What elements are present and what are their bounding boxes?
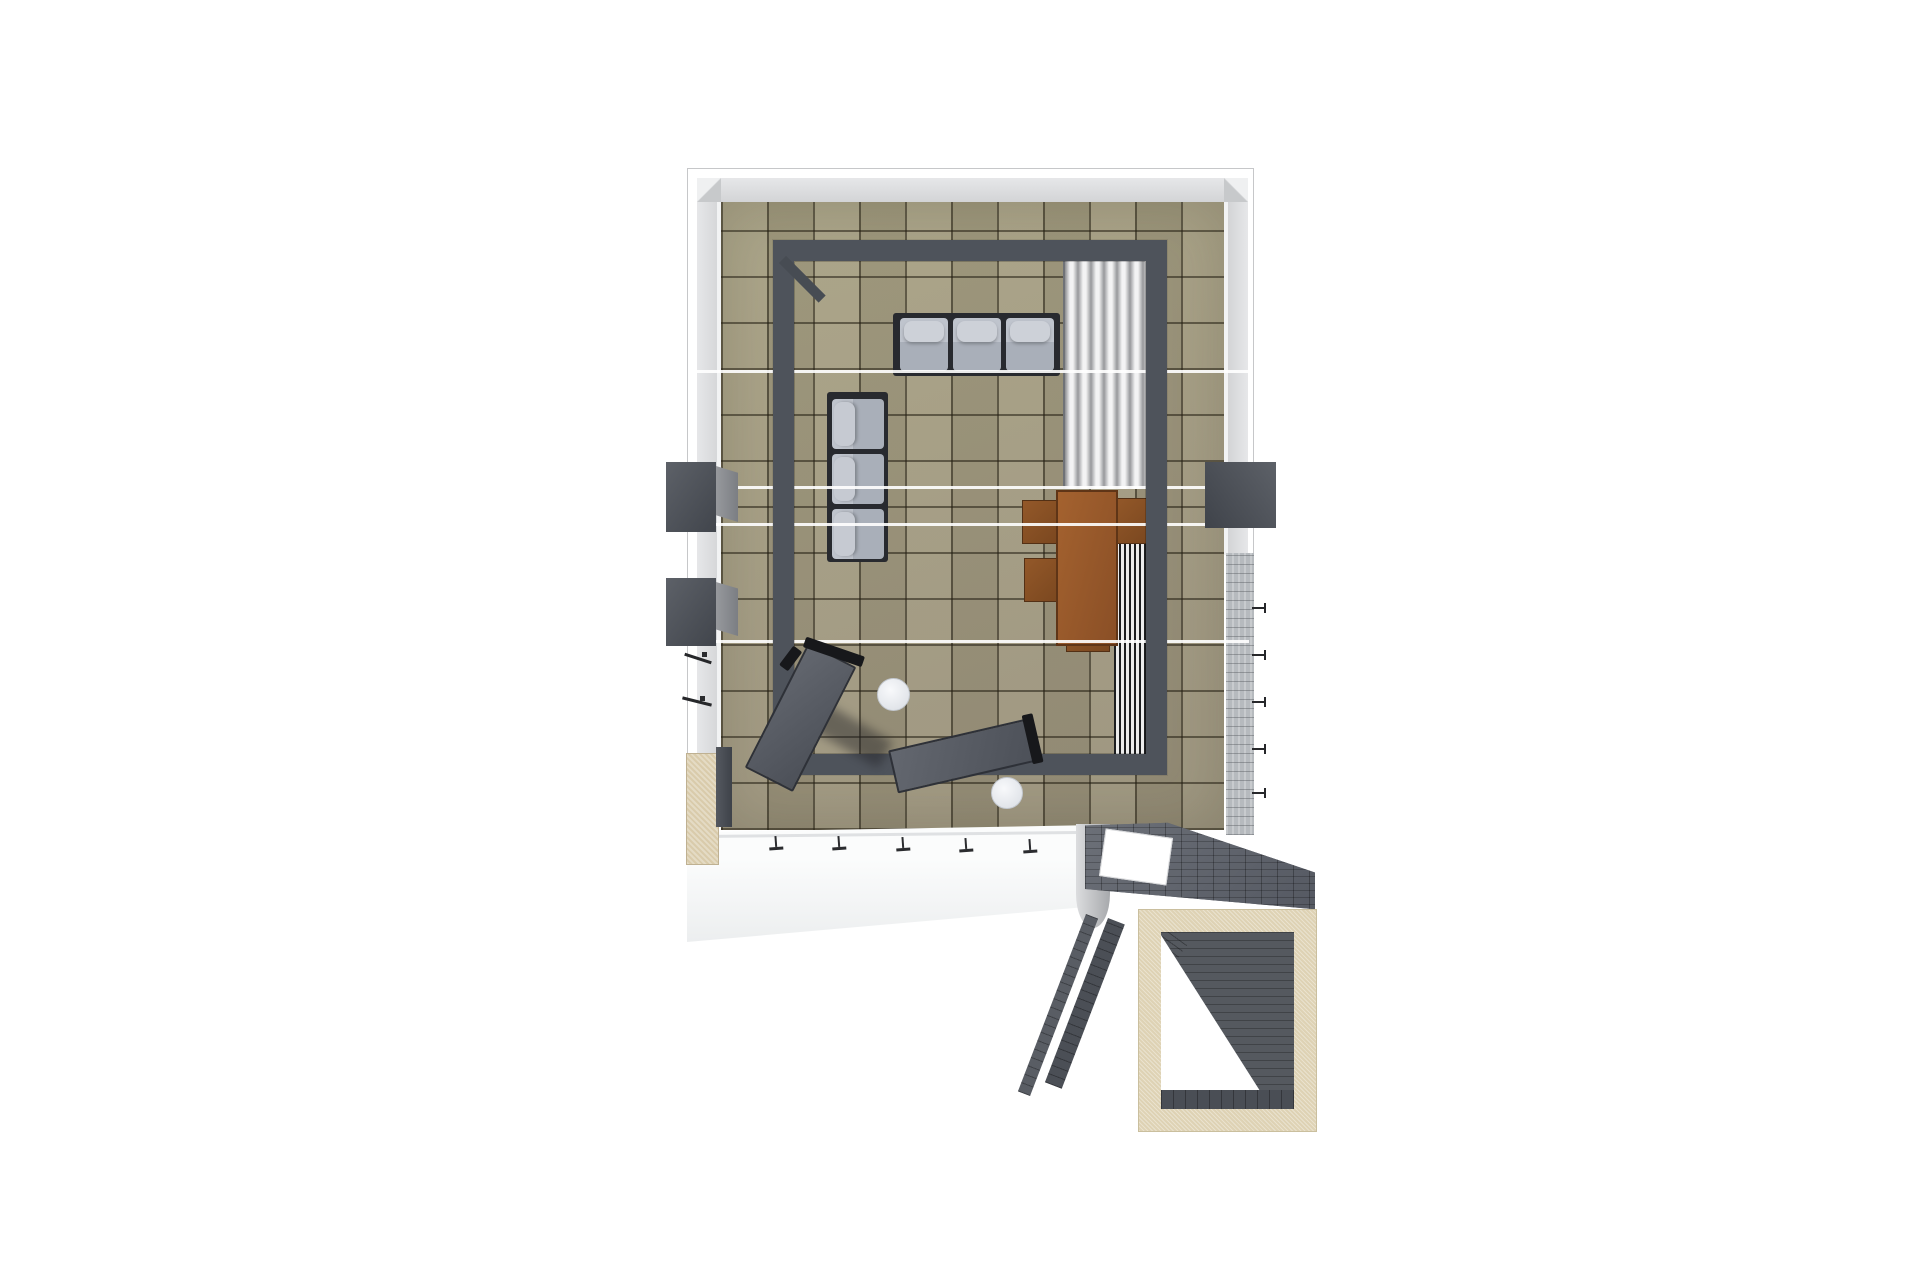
wall-box-right: [1205, 462, 1276, 528]
door-track-handle: [894, 836, 911, 853]
door-track-handle: [957, 837, 974, 854]
entry-portal: [1138, 909, 1317, 1132]
column-dark-strip: [716, 747, 732, 827]
door-hinge-mark: [702, 652, 707, 657]
stone-wall-right: [1226, 553, 1254, 835]
wall-top: [697, 178, 1242, 202]
floorplan-render: [0, 0, 1920, 1280]
wall-corner-bevel-top-left: [697, 178, 721, 202]
wall-box-left-2: [666, 578, 716, 646]
wall-corner-bevel-top-right: [1224, 178, 1248, 202]
wall-tick-mark: [1252, 603, 1268, 615]
wall-tick-mark: [1252, 744, 1268, 756]
wall-box-left-1: [666, 462, 716, 532]
wall-tick-mark: [1252, 650, 1268, 662]
portal-opening: [1161, 932, 1294, 1109]
door-track-handle: [767, 835, 784, 852]
beige-column: [686, 753, 719, 865]
door-track-handle: [1021, 838, 1038, 855]
wall-tick-mark: [1252, 697, 1268, 709]
wall-box-side-face: [716, 466, 738, 522]
wall-tick-mark: [1252, 788, 1268, 800]
round-side-table-2: [991, 777, 1023, 809]
portal-bottom-step: [1161, 1090, 1294, 1109]
round-side-table-1: [877, 678, 910, 711]
door-hinge-mark: [700, 696, 705, 701]
wall-box-side-face: [716, 582, 738, 636]
skylight-opening: [1099, 829, 1173, 886]
door-track-handle: [830, 835, 847, 852]
